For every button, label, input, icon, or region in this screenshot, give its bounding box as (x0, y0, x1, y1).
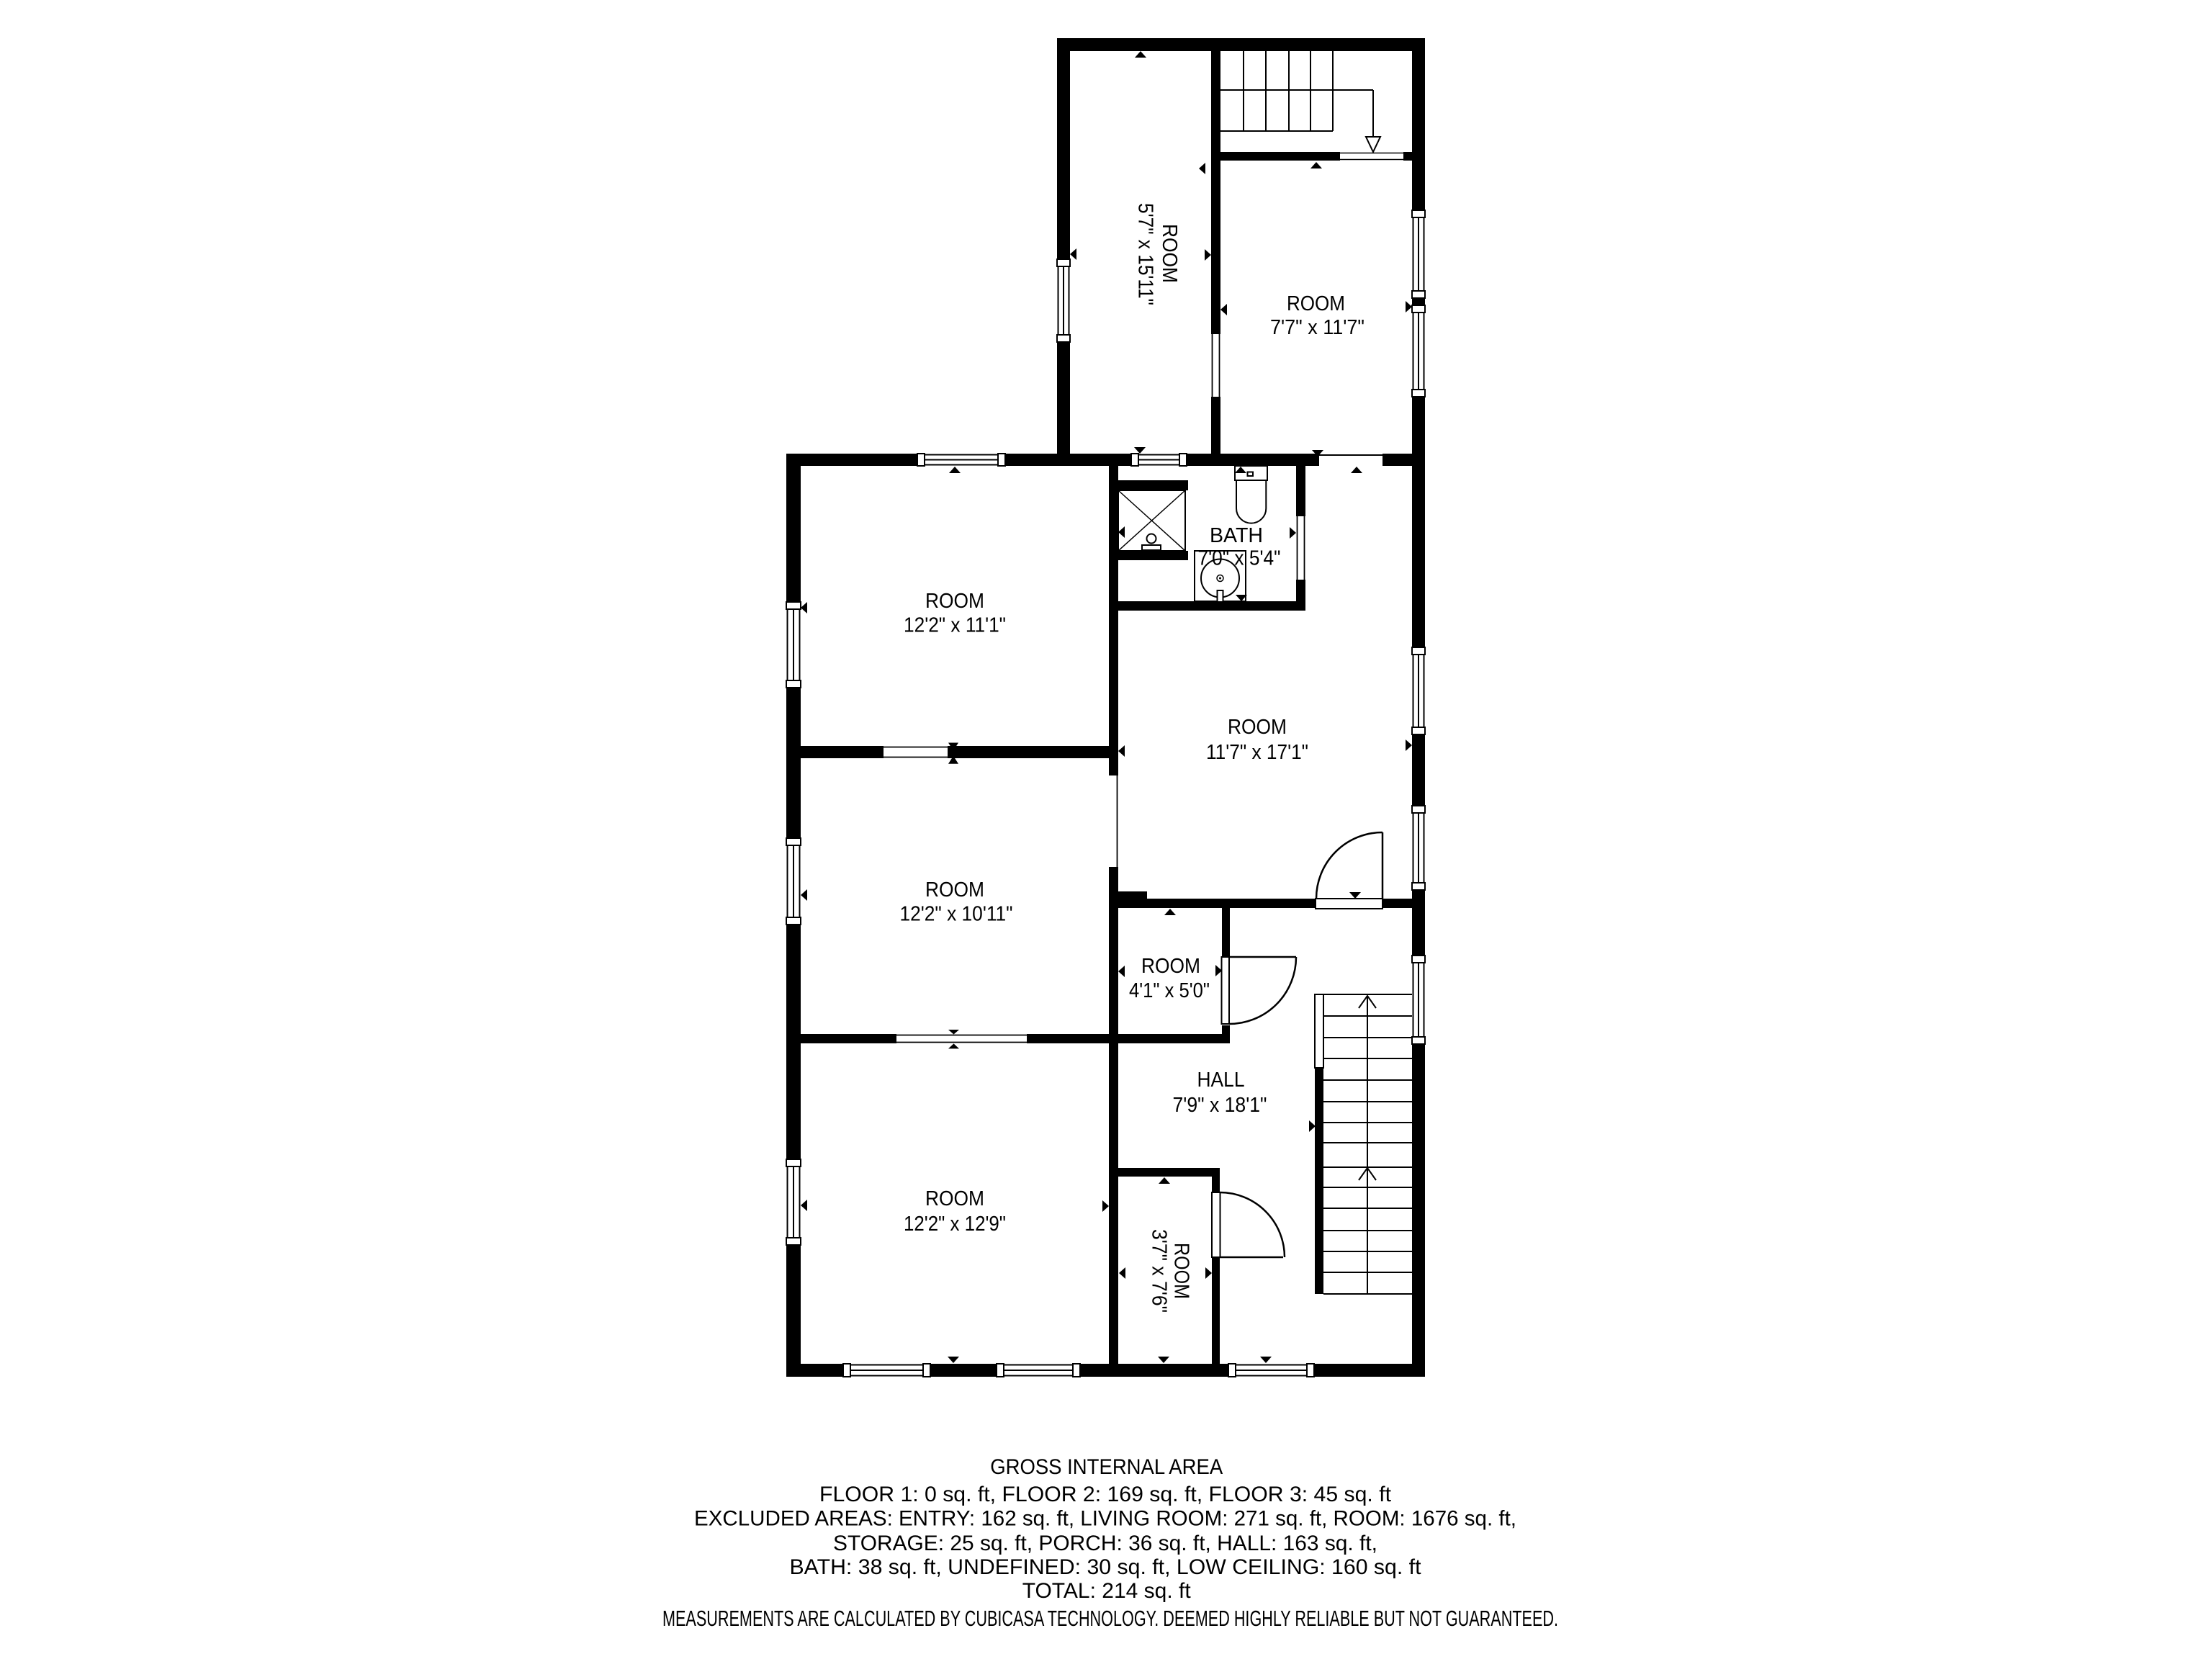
svg-text:12'2" x 12'9": 12'2" x 12'9" (904, 1213, 1006, 1236)
svg-text:12'2" x 10'11": 12'2" x 10'11" (900, 903, 1013, 926)
svg-text:ROOM: ROOM (925, 1187, 984, 1210)
svg-text:ROOM: ROOM (1141, 955, 1200, 978)
svg-text:5'7" x 15'11": 5'7" x 15'11" (1133, 203, 1156, 305)
svg-text:STORAGE: 25 sq. ft, PORCH: 36: STORAGE: 25 sq. ft, PORCH: 36 sq. ft, HA… (833, 1532, 1377, 1555)
svg-text:ROOM: ROOM (925, 878, 984, 902)
svg-text:ROOM: ROOM (1228, 716, 1287, 739)
svg-text:ROOM: ROOM (1287, 292, 1345, 315)
svg-text:7'9" x 18'1": 7'9" x 18'1" (1173, 1094, 1267, 1117)
svg-text:BATH: 38 sq. ft, UNDEFINED: 30: BATH: 38 sq. ft, UNDEFINED: 30 sq. ft, L… (790, 1555, 1422, 1579)
svg-text:FLOOR 1: 0 sq. ft, FLOOR 2: 16: FLOOR 1: 0 sq. ft, FLOOR 2: 169 sq. ft, … (819, 1483, 1392, 1506)
svg-text:7'7" x 11'7": 7'7" x 11'7" (1270, 316, 1364, 339)
svg-text:3'7" x 7'6": 3'7" x 7'6" (1147, 1229, 1170, 1313)
svg-text:ROOM: ROOM (1169, 1243, 1192, 1299)
svg-text:7'0" x 5'4": 7'0" x 5'4" (1198, 547, 1281, 570)
svg-text:ROOM: ROOM (925, 590, 984, 613)
svg-text:BATH: BATH (1210, 524, 1263, 547)
svg-text:TOTAL: 214 sq. ft: TOTAL: 214 sq. ft (1022, 1579, 1192, 1603)
svg-text:MEASUREMENTS ARE CALCULATED BY: MEASUREMENTS ARE CALCULATED BY CUBICASA … (662, 1606, 1558, 1631)
svg-text:EXCLUDED AREAS: ENTRY: 162 sq.: EXCLUDED AREAS: ENTRY: 162 sq. ft, LIVIN… (694, 1507, 1516, 1531)
svg-text:ROOM: ROOM (1158, 224, 1181, 283)
svg-text:11'7" x 17'1": 11'7" x 17'1" (1206, 741, 1308, 764)
svg-text:12'2" x 11'1": 12'2" x 11'1" (904, 614, 1006, 637)
svg-text:HALL: HALL (1197, 1069, 1245, 1092)
svg-text:4'1" x 5'0": 4'1" x 5'0" (1129, 979, 1210, 1002)
svg-text:GROSS INTERNAL AREA: GROSS INTERNAL AREA (990, 1455, 1223, 1479)
